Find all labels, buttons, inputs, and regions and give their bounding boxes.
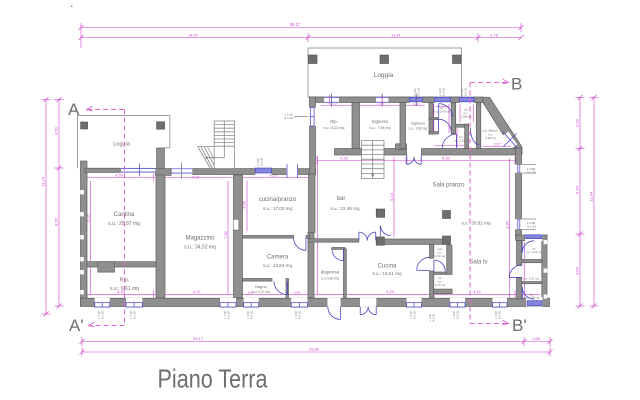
- svg-text:4,56: 4,56: [243, 201, 247, 208]
- svg-text:A': A': [69, 316, 84, 335]
- svg-text:Loggia: Loggia: [374, 72, 394, 79]
- svg-text:Sala pranzo: Sala pranzo: [432, 183, 465, 189]
- svg-text:ingresso: ingresso: [411, 122, 425, 126]
- svg-text:Bagno: Bagno: [255, 284, 267, 289]
- svg-text:dispensa: dispensa: [321, 270, 340, 275]
- svg-text:14,57: 14,57: [188, 32, 199, 37]
- svg-text:H 1,00: H 1,00: [284, 116, 293, 120]
- svg-text:4,15: 4,15: [473, 290, 480, 294]
- svg-text:H 2,25: H 2,25: [133, 311, 137, 320]
- svg-text:H 2,40: H 2,40: [432, 314, 436, 323]
- svg-text:s.u.: 2,22 mq: s.u.: 2,22 mq: [523, 276, 539, 280]
- svg-text:7,90: 7,90: [224, 231, 228, 238]
- svg-text:2,95: 2,95: [506, 221, 510, 228]
- svg-text:4,20: 4,20: [340, 156, 347, 160]
- svg-text:cucina/pranzo: cucina/pranzo: [259, 197, 297, 203]
- svg-text:4,59: 4,59: [115, 173, 122, 177]
- svg-text:H 2,10: H 2,10: [417, 87, 421, 96]
- svg-text:1,73 mq: 1,73 mq: [435, 283, 446, 287]
- svg-text:H 2,40: H 2,40: [260, 157, 264, 166]
- svg-text:11,34: 11,34: [589, 191, 594, 201]
- svg-text:29,85: 29,85: [309, 347, 320, 352]
- svg-text:0,84: 0,84: [295, 290, 301, 294]
- svg-text:3,68 mq: 3,68 mq: [485, 136, 496, 140]
- svg-text:s.u.: 7,98 mq: s.u.: 7,98 mq: [370, 126, 391, 130]
- svg-text:Sala tv: Sala tv: [469, 260, 487, 266]
- svg-text:Ingresso: Ingresso: [372, 119, 389, 124]
- svg-text:H 2,10: H 2,10: [442, 87, 446, 96]
- svg-text:4,37: 4,37: [192, 176, 199, 180]
- svg-text:Magazzino: Magazzino: [185, 236, 215, 242]
- svg-text:s.u.: 3,96 mq: s.u.: 3,96 mq: [409, 127, 428, 131]
- svg-text:1,68: 1,68: [532, 336, 541, 341]
- svg-text:H 2,25: H 2,25: [227, 311, 231, 320]
- svg-text:H 2,25: H 2,25: [456, 311, 460, 320]
- svg-text:3,29: 3,29: [575, 118, 580, 127]
- svg-text:B': B': [512, 316, 527, 335]
- svg-text:Cucina: Cucina: [378, 264, 397, 270]
- svg-text:2,76: 2,76: [490, 32, 499, 37]
- svg-text:1,00 mq: 1,00 mq: [435, 254, 446, 258]
- svg-text:11,34: 11,34: [41, 176, 46, 186]
- svg-text:s.u.: 13,84 mq: s.u.: 13,84 mq: [263, 263, 293, 268]
- svg-text:H 1,35: H 1,35: [527, 224, 536, 228]
- svg-text:H 2,25: H 2,25: [101, 311, 105, 320]
- svg-text:H 2,10: H 2,10: [464, 87, 468, 96]
- svg-text:11,41: 11,41: [391, 32, 401, 37]
- svg-text:s.u.: 22,46 mq: s.u.: 22,46 mq: [330, 206, 360, 211]
- svg-text:s.u.: 34,52 mq: s.u.: 34,52 mq: [184, 245, 216, 251]
- svg-text:4,50: 4,50: [54, 126, 59, 135]
- svg-text:s.u.: 8,22 mq: s.u.: 8,22 mq: [324, 126, 345, 130]
- svg-text:Loggia: Loggia: [113, 142, 130, 148]
- svg-text:s.u. 6,60 mq: s.u. 6,60 mq: [321, 277, 339, 281]
- svg-text:Piano Terra: Piano Terra: [158, 364, 268, 394]
- svg-text:s.u.: 30,82 mq: s.u.: 30,82 mq: [461, 221, 491, 226]
- svg-text:5,25: 5,25: [386, 290, 393, 294]
- svg-text:s.u.: 2,40 mq: s.u.: 2,40 mq: [434, 109, 451, 113]
- svg-text:H 2,25: H 2,25: [498, 311, 502, 320]
- svg-text:8,56: 8,56: [54, 217, 59, 226]
- svg-text:28,17: 28,17: [290, 22, 301, 27]
- svg-text:s.u.: 1,99 mq: s.u.: 1,99 mq: [524, 296, 540, 300]
- svg-text:H 2,25: H 2,25: [413, 311, 417, 320]
- svg-text:6,44: 6,44: [390, 193, 394, 200]
- svg-text:bar: bar: [337, 196, 346, 202]
- svg-text:H 2,25: H 2,25: [250, 311, 254, 320]
- svg-text:s.u.: 18,61 mq: s.u.: 18,61 mq: [372, 271, 402, 276]
- svg-text:4,60: 4,60: [575, 266, 580, 275]
- svg-text:s.u. 2,25 m: s.u. 2,25 m: [454, 138, 469, 142]
- svg-text:2,07: 2,07: [494, 142, 501, 146]
- svg-text:H 2,25: H 2,25: [298, 311, 302, 320]
- svg-text:s.u. 3,07 mq: s.u. 3,07 mq: [252, 290, 270, 294]
- svg-text:4,37: 4,37: [193, 290, 200, 294]
- svg-text:Rip.: Rip.: [330, 119, 337, 124]
- svg-text:H 1,35: H 1,35: [527, 170, 536, 174]
- svg-text:6,30: 6,30: [442, 156, 449, 160]
- svg-text:A: A: [68, 100, 80, 119]
- svg-text:Camera: Camera: [267, 255, 289, 261]
- svg-text:6,40: 6,40: [575, 185, 580, 194]
- svg-text:29,17: 29,17: [193, 336, 204, 341]
- svg-text:B: B: [511, 75, 522, 94]
- svg-text:s.u.: 2,02 mq: s.u.: 2,02 mq: [526, 250, 542, 254]
- svg-text:s.u.: 17,03 mq: s.u.: 17,03 mq: [263, 206, 293, 211]
